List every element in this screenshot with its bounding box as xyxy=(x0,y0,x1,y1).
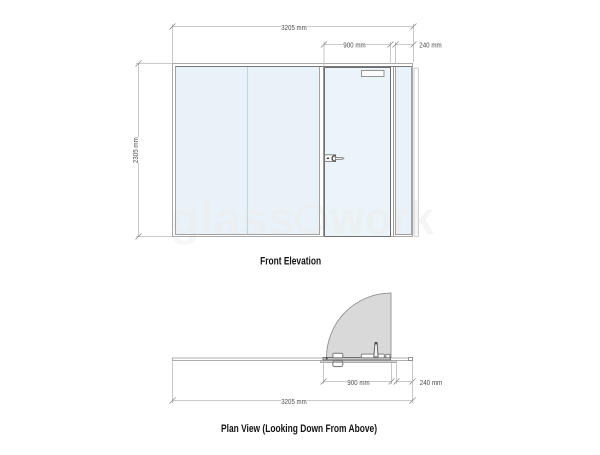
svg-text:240 mm: 240 mm xyxy=(420,378,443,387)
svg-text:3205 mm: 3205 mm xyxy=(281,23,307,32)
svg-text:900 mm: 900 mm xyxy=(343,41,366,50)
svg-text:900 mm: 900 mm xyxy=(347,378,370,387)
svg-text:3205 mm: 3205 mm xyxy=(281,397,307,406)
svg-text:240 mm: 240 mm xyxy=(419,41,442,50)
svg-text:2305 mm: 2305 mm xyxy=(131,137,140,163)
svg-text:Plan View (Looking Down From A: Plan View (Looking Down From Above) xyxy=(221,423,377,435)
svg-text:glass: glass xyxy=(170,192,295,245)
svg-text:Front Elevation: Front Elevation xyxy=(260,256,321,268)
